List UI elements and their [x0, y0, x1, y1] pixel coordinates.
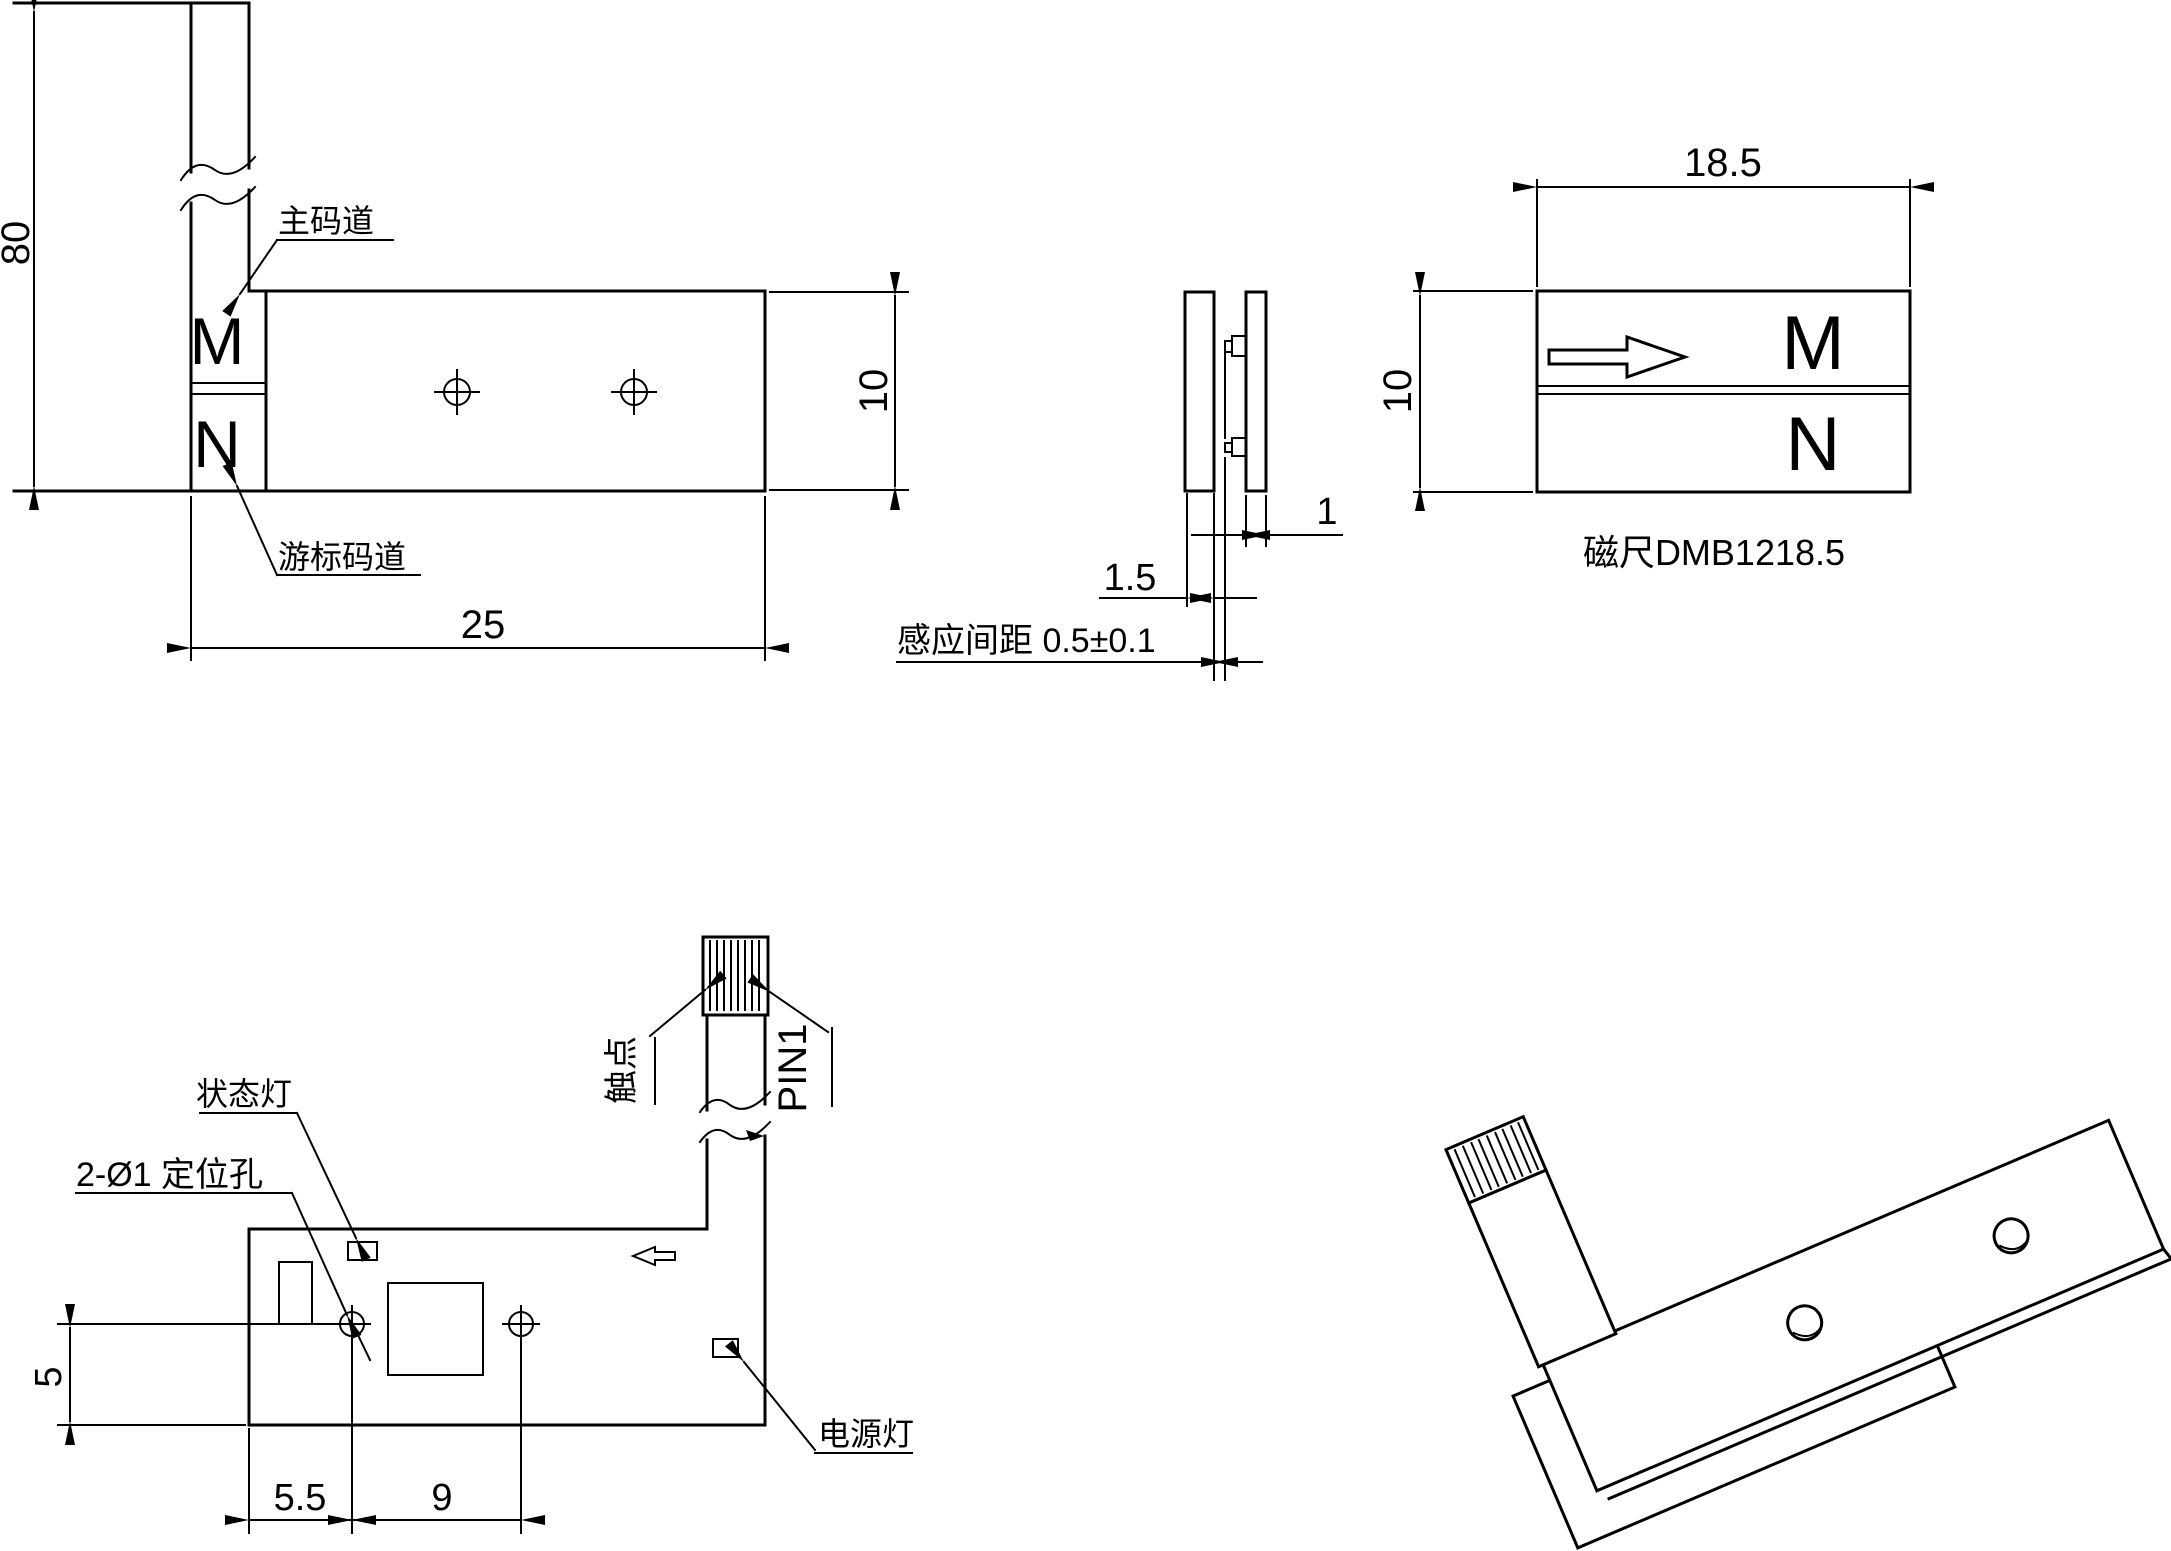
drawing-page: M N 80 25 10 主码道 [0, 0, 2171, 1551]
pcb-body-outline [249, 1229, 765, 1425]
magnet-separator-band [1537, 386, 1910, 394]
assembly-cable [1469, 1170, 1616, 1367]
dim-25: 25 [191, 497, 765, 660]
track-separator-band [191, 383, 266, 394]
dim-80: 80 [0, 12, 38, 486]
dim-18-5: 18.5 [1537, 141, 1910, 286]
label-contacts-text: 触点 [603, 1036, 641, 1104]
scale-plate-edge [1185, 292, 1214, 491]
dim-10-magnet: 10 [1376, 291, 1532, 492]
assembly-3d-view [1414, 905, 2171, 1548]
scale-plan-view: M N 80 25 10 主码道 [0, 3, 908, 660]
pcb-direction-arrow [633, 1247, 675, 1265]
label-status-led-text: 状态灯 [196, 1076, 292, 1112]
magnet-caption: 磁尺DMB1218.5 [1583, 532, 1845, 573]
pcb-cable-edges [707, 1015, 765, 1229]
dim-1-text: 1 [1316, 491, 1337, 533]
dim-5-5-text: 5.5 [274, 1477, 327, 1519]
label-locating-holes: 2-Ø1 定位孔 [76, 1156, 370, 1360]
dim-9-text: 9 [431, 1477, 452, 1519]
dim-10-magnet-text: 10 [1376, 369, 1420, 414]
magnet-strip-outline [1537, 291, 1910, 492]
power-led [713, 1339, 738, 1357]
dim-sensing-gap-text: 感应间距 0.5±0.1 [897, 622, 1156, 660]
ffc-connector-fingers [710, 941, 759, 1010]
cable-break-wave-upper [700, 1092, 770, 1112]
label-pin1-text: PIN1 [771, 1024, 815, 1113]
mounting-hole-left [435, 370, 479, 414]
dim-10-plan-text: 10 [852, 369, 896, 414]
magnet-pole-n: N [1786, 402, 1841, 487]
locating-hole-left [334, 1306, 370, 1342]
magnet-strip-view: M N 18.5 10 磁尺DMB1218.5 [1376, 141, 1910, 573]
assembly-sensor-board [1542, 1120, 2164, 1490]
cable-break-tick [746, 1130, 764, 1141]
dim-18-5-text: 18.5 [1684, 141, 1762, 185]
cable-break-wave-lower [700, 1122, 770, 1142]
dim-80-text: 80 [0, 221, 38, 266]
label-main-track: 主码道 [240, 203, 393, 294]
label-power-led: 电源灯 [744, 1362, 914, 1453]
label-contacts: 触点 [603, 990, 705, 1104]
label-locating-holes-text: 2-Ø1 定位孔 [76, 1156, 263, 1194]
label-vernier-track: 游标码道 [237, 486, 420, 575]
label-main-track-text: 主码道 [278, 203, 374, 239]
sensor-contact-bottom [1225, 438, 1246, 456]
sensor-pcb-edge [1246, 292, 1266, 491]
component-slot [279, 1262, 312, 1324]
pole-letter-n: N [193, 407, 241, 481]
dim-1-5-text: 1.5 [1104, 557, 1157, 599]
magnet-pole-m: M [1781, 301, 1844, 386]
engineering-drawing: M N 80 25 10 主码道 [0, 0, 2171, 1551]
dim-25-text: 25 [461, 603, 506, 647]
pole-letter-m: M [190, 304, 245, 378]
sensor-chip [388, 1283, 483, 1375]
direction-arrow [1549, 337, 1685, 377]
dim-5-5-and-9: 5.5 9 [249, 1340, 521, 1533]
scale-side-view: 1 1.5 感应间距 0.5±0.1 [897, 292, 1342, 680]
dim-5-text: 5 [28, 1366, 70, 1387]
dim-10-plan: 10 [770, 292, 908, 490]
label-pin1: PIN1 [770, 992, 832, 1112]
sensor-pcb-view: 状态灯 2-Ø1 定位孔 触点 PIN1 电源灯 [28, 937, 914, 1533]
dim-5: 5 [28, 1324, 334, 1425]
label-vernier-track-text: 游标码道 [278, 539, 406, 575]
sensor-contact-top [1225, 336, 1246, 356]
label-power-led-text: 电源灯 [818, 1416, 914, 1452]
status-led [348, 1242, 377, 1260]
mounting-hole-right [612, 370, 656, 414]
locating-hole-right [503, 1306, 539, 1342]
